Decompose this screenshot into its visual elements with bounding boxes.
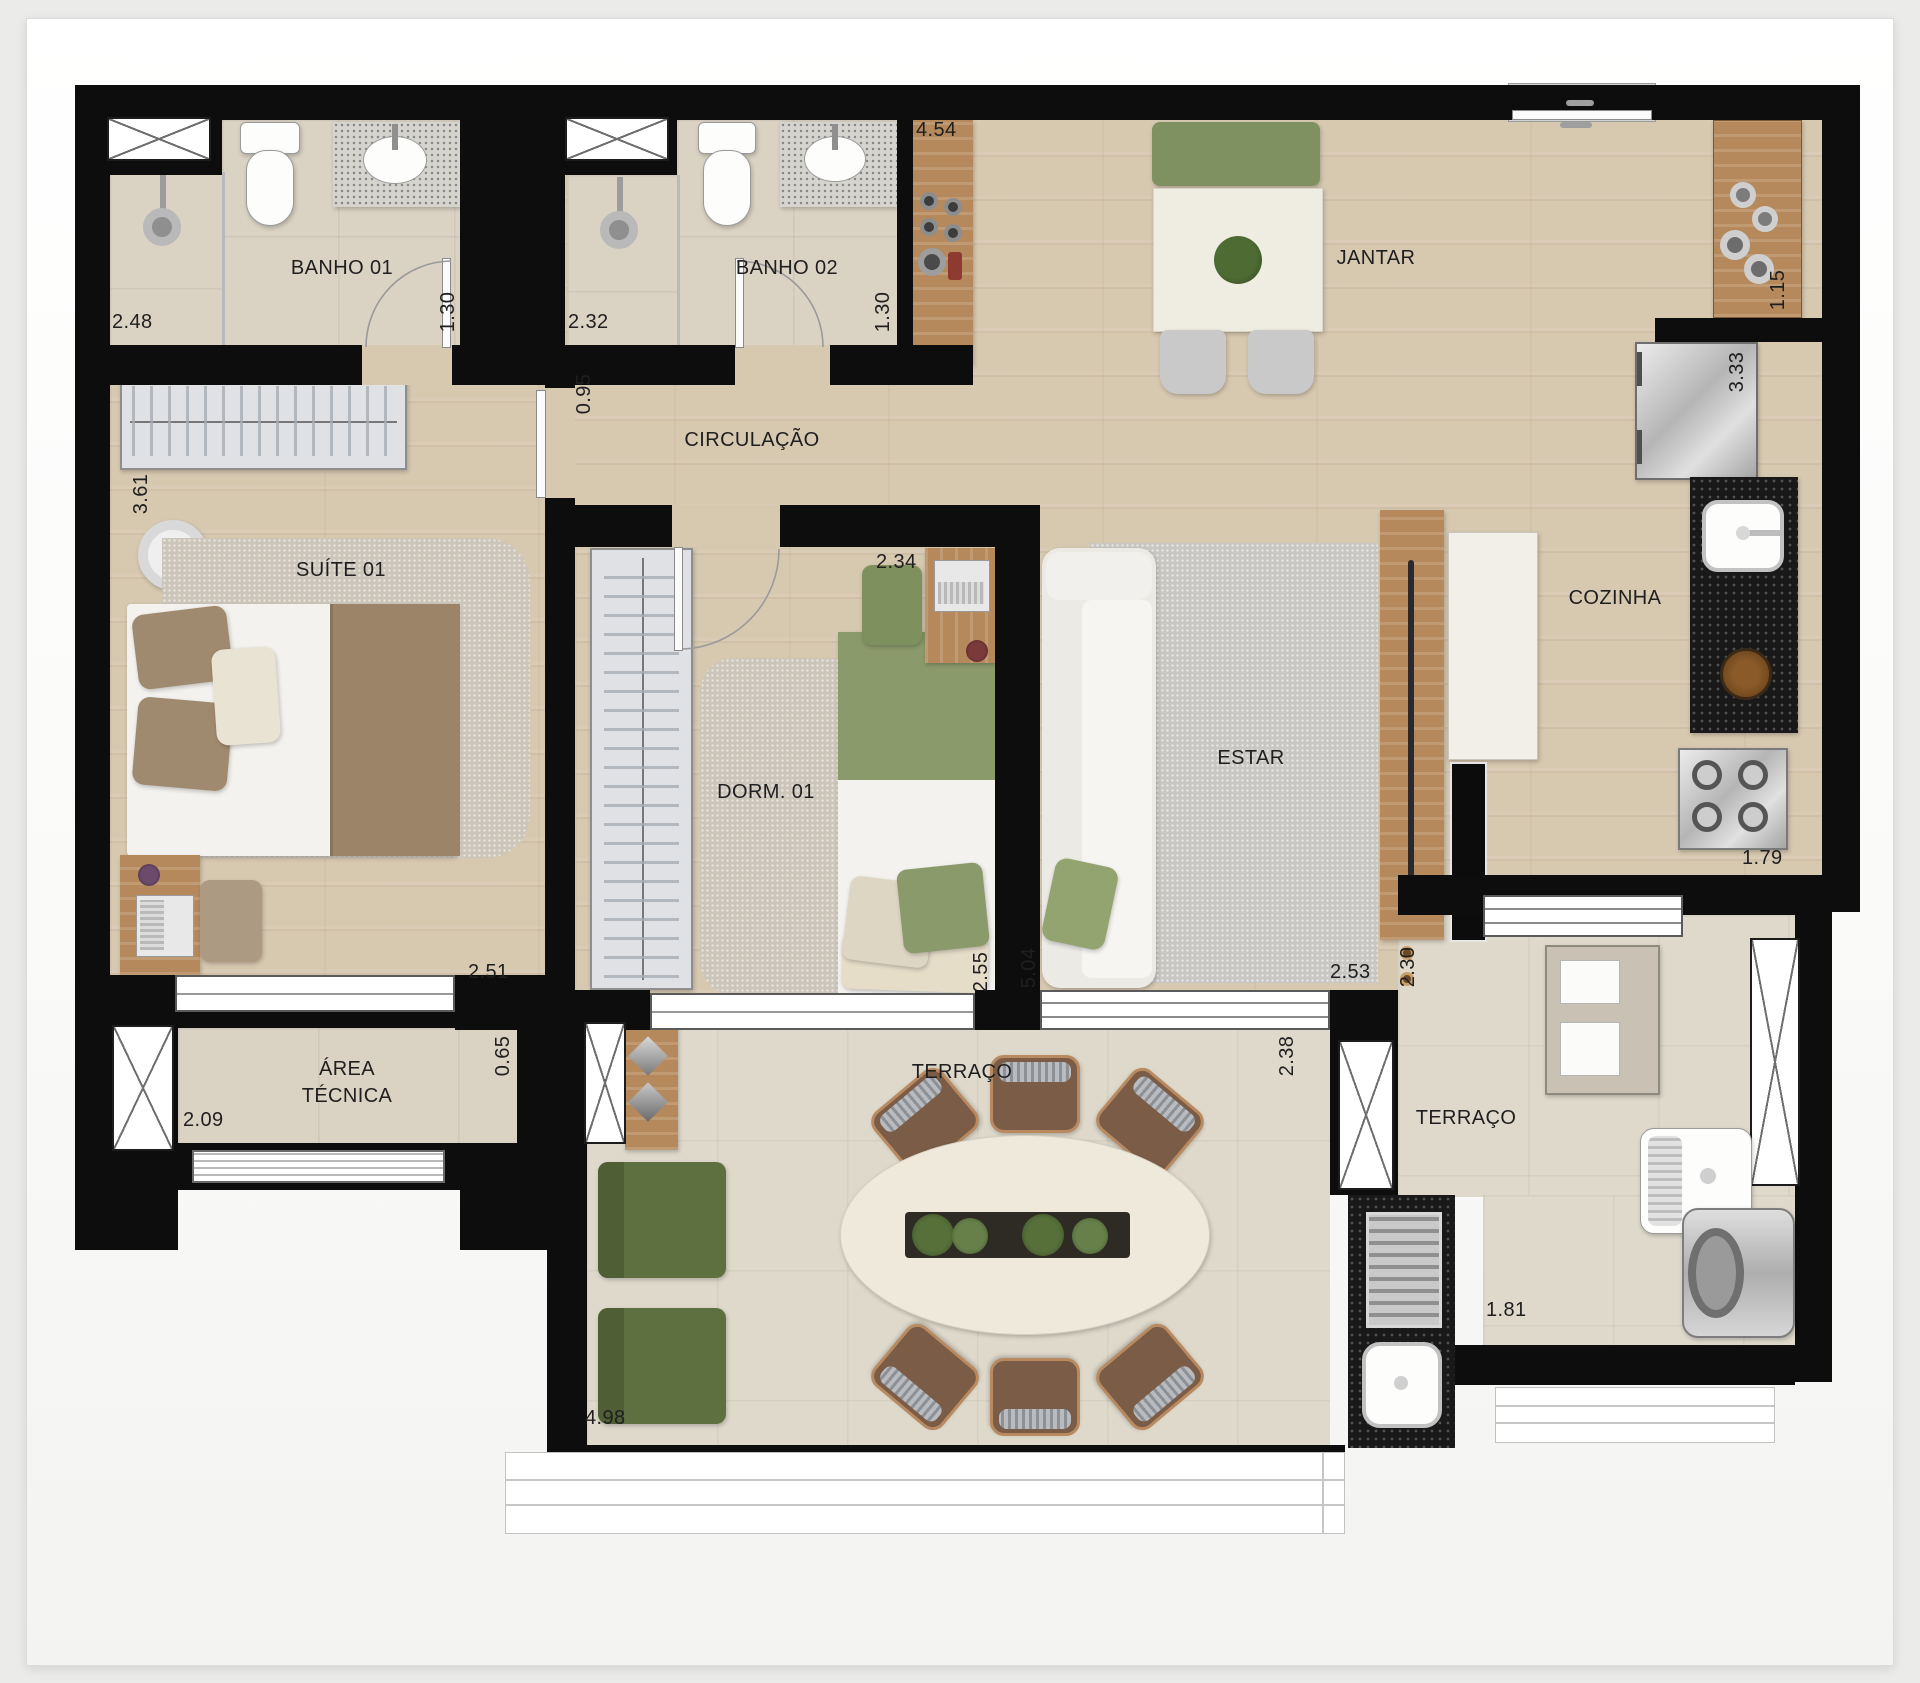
dim-estar-height: 5.04 [1017,938,1041,998]
terrace-armchair-1 [598,1162,726,1278]
dorm-desk-plant [966,640,988,662]
wall-terraco-bottom-edge [547,1445,1345,1452]
dorm-rug [700,658,845,995]
faucet-banho2 [832,124,838,150]
suite-desk-chair [200,880,262,962]
tv-panel [1450,762,1487,942]
faucet-banho1 [392,124,398,150]
dim-terraco-servico-depth: 2.30 [1396,937,1420,997]
dim-terraco-depth: 2.38 [1275,1026,1299,1086]
sliding-door-cozinha-servico [1483,895,1683,937]
laundry-sink-ribs [1648,1136,1682,1226]
shower-glass-partition-banho1 [222,172,225,350]
planter-green-4 [1072,1218,1108,1254]
room-label-banho-02: BANHO 02 [687,256,887,280]
cooktop-knob-2 [944,198,962,216]
towel-stack-2 [1560,1022,1620,1076]
shaft-box-servico [1750,938,1800,1186]
cooktop-knob-1 [920,192,938,210]
wall-area-tecnica-right [517,1012,587,1190]
suite-desk-plant [138,864,160,886]
suite-pillow-3 [211,646,282,746]
room-label-circulacao: CIRCULAÇÃO [622,428,882,452]
laundry-faucet [1700,1168,1716,1184]
cooktop-knob-3 [920,218,938,236]
wall-terraco-corner [460,1190,587,1250]
tv-console-groove [1408,560,1414,890]
wall-dorm-estar [995,505,1040,995]
entrance-door-leaf [1512,110,1652,120]
servico-railing [1495,1387,1775,1443]
room-label-jantar: JANTAR [1276,246,1476,270]
window-suite [175,975,455,1012]
wardrobe-hangers [604,560,679,978]
dim-dorm-width: 2.34 [876,550,917,574]
door-leaf-suite [536,390,546,498]
dorm-laptop-keyboard [938,582,984,604]
kitchen-faucet-base [1736,526,1750,540]
stove-burner-4 [1738,802,1768,832]
wall-servico-bottom [1455,1345,1795,1385]
door-opening-dorm [672,505,780,547]
entrance-door-handle-out [1566,100,1594,106]
washing-machine-drum [1688,1228,1744,1318]
room-label-suite-01: SUÍTE 01 [241,558,441,582]
dim-cozinha-width: 1.79 [1742,846,1783,870]
room-label-area-tecnica: ÁREA TÉCNICA [282,1056,412,1110]
cooktop-burner-large [918,248,946,276]
wall-banho2-jantar [897,120,913,350]
dim-suite-height: 3.61 [129,464,153,524]
wall-below-banhos [110,345,973,385]
dim-suite-width: 2.51 [468,960,509,984]
wall-below-buffet [1655,318,1822,342]
buffet-bowl-3 [1720,230,1750,260]
suite-laptop-keyboard [140,900,164,950]
room-label-estar: ESTAR [1151,746,1351,770]
floor-plan-stage: BANHO 01 2.48 1.30 BANHO 02 2.32 1.30 JA… [0,0,1920,1683]
wall-servico-right [1795,912,1832,1382]
terrace-chair-5 [990,1358,1080,1436]
wall-dorm-top [567,505,1000,547]
towel-stack-1 [1560,960,1620,1004]
room-label-banho-01: BANHO 01 [242,256,442,280]
dim-jantar-buffet: 1.15 [1766,260,1790,320]
dim-cozinha-height: 3.33 [1725,342,1749,402]
room-label-dorm-01: DORM. 01 [666,780,866,804]
shaft-box-terraco [584,1022,626,1144]
dim-area-tecnica-depth: 0.65 [491,1026,515,1086]
wall-right [1822,85,1860,912]
sofa-arm [1046,552,1152,600]
dim-banho2-depth: 1.30 [871,282,895,342]
dorm-pillow-2 [896,862,990,955]
dining-chair-1 [1160,330,1226,394]
suite-bed-blanket [330,604,460,856]
wall-fill-estar-door-right [1330,990,1398,1030]
sideboard-white-cabinet [1448,532,1538,760]
kitchen-counter-red-item [948,252,962,280]
shaft-box-area-tecnica [112,1025,174,1151]
shaft-box-2 [565,117,669,161]
kitchen-island-counter [912,120,973,365]
room-label-terraco-servico: TERRAÇO [1366,1106,1566,1130]
dim-area-tecnica-width: 2.09 [183,1108,224,1132]
cooktop-knob-4 [944,224,962,242]
dim-estar-width: 2.53 [1330,960,1371,984]
stove-burner-3 [1692,802,1722,832]
fridge-handle-2 [1637,430,1642,464]
buffet-bowl-1 [1730,182,1756,208]
door-opening-banho2 [735,345,830,385]
chair-cushion [999,1409,1071,1429]
toilet-bowl-banho1 [246,150,294,226]
dorm-desk-chair [862,565,922,645]
room-label-cozinha: COZINHA [1515,586,1715,610]
shower-glass-partition-banho2 [677,175,680,350]
dim-banho2-width: 2.32 [568,310,609,334]
window-dorm [650,993,975,1030]
dining-bench [1152,122,1320,186]
door-leaf-dorm [674,547,683,651]
door-opening-banho1 [362,345,452,385]
shower-head-banho2 [600,211,638,249]
fridge-handle-1 [1637,352,1642,386]
dim-dorm-depth: 2.55 [969,942,993,1002]
dining-table-plant [1214,236,1262,284]
planter-green-1 [912,1214,954,1256]
dim-jantar-counter: 4.54 [916,118,957,142]
dim-banho1-width: 2.48 [112,310,153,334]
entrance-door-handle-in [1560,122,1592,128]
shower-head-banho1 [143,208,181,246]
louver-area-tecnica [192,1150,445,1183]
planter-green-2 [952,1218,988,1254]
room-label-terraco: TERRAÇO [862,1060,1062,1084]
door-opening-suite [545,388,575,498]
fruit-bowl [1720,648,1772,700]
dim-terraco-width: 4.98 [585,1406,626,1430]
shaft-box-1 [107,117,211,161]
stove-burner-1 [1692,760,1722,790]
dining-chair-2 [1248,330,1314,394]
stove-burner-2 [1738,760,1768,790]
toilet-bowl-banho2 [703,150,751,226]
suite-wardrobe [120,372,407,470]
wall-between-banhos [460,120,565,378]
dim-circulacao: 0.95 [572,364,596,424]
armchair-back [598,1162,624,1278]
dim-banho1-depth: 1.30 [436,282,460,342]
terrace-railing [505,1452,1345,1534]
planter-green-3 [1022,1214,1064,1256]
stove [1678,748,1788,850]
dim-terraco-servico-width: 1.81 [1486,1298,1527,1322]
sliding-door-estar-terraco [1040,990,1330,1030]
terrace-railing-post [1322,1452,1324,1534]
bbq-grill [1366,1212,1442,1328]
buffet-bowl-2 [1752,206,1778,232]
wall-area-tecnica-top [110,1012,587,1028]
bbq-faucet [1394,1376,1408,1390]
wardrobe-hangers [132,386,395,456]
